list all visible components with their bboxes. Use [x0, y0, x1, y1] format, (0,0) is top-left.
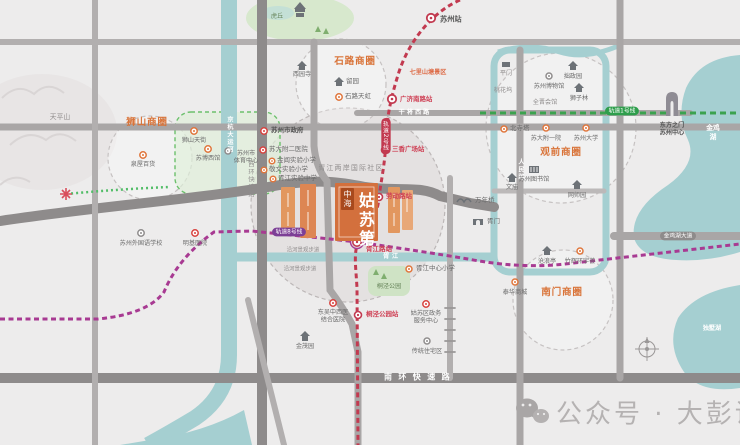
label-shilu-tianhong: 石路天虹 [345, 93, 371, 101]
nanmen-circle [513, 250, 613, 350]
label-xujiang-river: 胥江 [383, 253, 401, 261]
xumen-gate-icon [473, 219, 483, 225]
pill-line2: 轨道2号线 [381, 118, 390, 154]
label-library: 苏州图书馆 [519, 176, 550, 184]
label-sudafuer: 苏大附二医院 [269, 146, 308, 154]
label-taihua: 泰华商城 [503, 289, 527, 297]
label-gusu-gov: 姑苏区政务 服务中心 [411, 310, 442, 325]
label-station-guangji: 广济南路站 [400, 96, 432, 104]
label-project-area: 胥江两岸国际社区 [318, 165, 383, 174]
label-canal: 京杭大运河 [225, 116, 233, 153]
label-mingji: 明基医院 [183, 240, 207, 248]
label-station-tongjing: 桐泾公园站 [366, 311, 398, 319]
label-subo-xiguan: 苏博西馆 [196, 155, 220, 163]
label-quanwu: 泉屋百货 [131, 161, 155, 169]
label-xiyuansi: 西园寺 [293, 71, 311, 79]
label-wenmiao: 文庙 [506, 184, 518, 192]
label-jinji-lake: 金鸡湖 [704, 125, 722, 142]
label-nanhuan-road: 南环快速路 [384, 373, 456, 383]
jinmaoyuan-building-icon [300, 331, 310, 341]
pill-jinjihu-avenue: 金鸡湖大道 [660, 232, 696, 241]
label-jingwen-school: 敬文实验小学 [269, 166, 308, 174]
label-suwai: 苏州外国语学校 [120, 240, 163, 248]
label-xujiang-zhongxin-school: 胥江中心小学 [416, 265, 455, 273]
label-shishan-tianjie: 狮山天街 [182, 137, 206, 145]
label-pingmen: 平门 [500, 70, 512, 78]
label-shishan-circle: 狮山商圈 [126, 116, 168, 128]
label-jinmaoyuan: 金茂园 [296, 343, 314, 351]
station-guangji-nanlu-icon [388, 95, 396, 103]
label-tianpingshan: 天平山 [50, 114, 70, 123]
label-canglangting: 沧浪亭 [538, 258, 556, 266]
label-huqiu: 虎丘 [271, 13, 283, 21]
dongfangzhimen-building-icon [666, 92, 678, 116]
label-zhuozhengyuan: 拙政园 [564, 73, 582, 81]
label-shizilin: 狮子林 [570, 95, 588, 103]
label-nanmen-circle: 南门商圈 [541, 286, 583, 298]
label-shizhengfu: 苏州市政府 [271, 127, 303, 135]
label-station-sanxiang: 三香广场站 [392, 146, 424, 154]
label-qili-shantang: 七里山塘景区 [410, 69, 447, 77]
project-name: 姑苏第 [353, 192, 377, 249]
label-walkway-1: 沿河景观步道 [287, 247, 320, 254]
station-suzhou-icon [427, 14, 435, 22]
label-housing: 传统住宅区 [412, 348, 443, 356]
label-dushu-lake: 独墅湖 [703, 325, 721, 333]
label-wannianqiao: 万年桥 [475, 197, 494, 205]
real-estate-location-map: 天平山 虎丘 桐泾公园 狮山商圈 石路商圈 观前商圈 南门商圈 胥江两岸国际社区… [0, 0, 740, 445]
watermark-text: 公众号 · 大彭说房 [556, 394, 740, 431]
label-xihuan-road: 西环快速路 [246, 161, 254, 198]
label-station-laodonglu: 劳动路站 [386, 193, 412, 201]
library-building-icon [529, 166, 539, 173]
label-zhuhui: 竹辉环宇荟 [565, 258, 596, 266]
label-shilu-circle: 石路商圈 [334, 55, 376, 67]
tongjing-park-area [368, 266, 410, 296]
label-quanjin: 全晋会馆 [533, 99, 557, 107]
label-station-suzhou: 苏州站 [440, 16, 462, 25]
label-jinchang-school: 金阊实验小学 [277, 157, 316, 165]
label-taohuawu: 桃花坞 [494, 87, 512, 95]
label-guanqian-circle: 观前商圈 [540, 146, 582, 158]
label-suzhou-daxue: 苏州大学 [574, 135, 598, 143]
pill-line1: 轨道1号线 [605, 107, 639, 116]
label-dongwu-hospital: 东吴中西医 结合医院 [318, 309, 349, 324]
label-liuyuan: 留园 [346, 78, 359, 86]
label-xujiang-zhongxue: 胥江实验中学 [278, 175, 317, 183]
label-sports-center: 苏州市 体育中心 [234, 150, 258, 165]
label-beisita: 北寺塔 [510, 125, 529, 133]
station-tongjing-icon [355, 312, 362, 319]
label-walkway-2: 沿河景观步道 [284, 266, 317, 273]
label-wangshiyuan: 网师园 [568, 192, 586, 200]
route-star-marker [60, 188, 72, 200]
jinji-lake [634, 55, 740, 260]
pill-line8: 轨道8号线 [272, 228, 306, 237]
label-dongfangzhimen: 东方之门 苏州中心 [660, 122, 684, 137]
label-xumen: 胥门 [487, 218, 500, 226]
mountain-contours [0, 74, 117, 190]
label-ganjiang-road: 干将西路 [399, 109, 432, 117]
label-suda-fuyi: 苏大附一院 [531, 135, 562, 143]
label-suzhou-museum: 苏州博物馆 [534, 83, 565, 91]
pingmen-gate-icon [502, 62, 510, 67]
label-tongjing-park: 桐泾公园 [377, 283, 401, 291]
compass-icon [635, 337, 659, 361]
